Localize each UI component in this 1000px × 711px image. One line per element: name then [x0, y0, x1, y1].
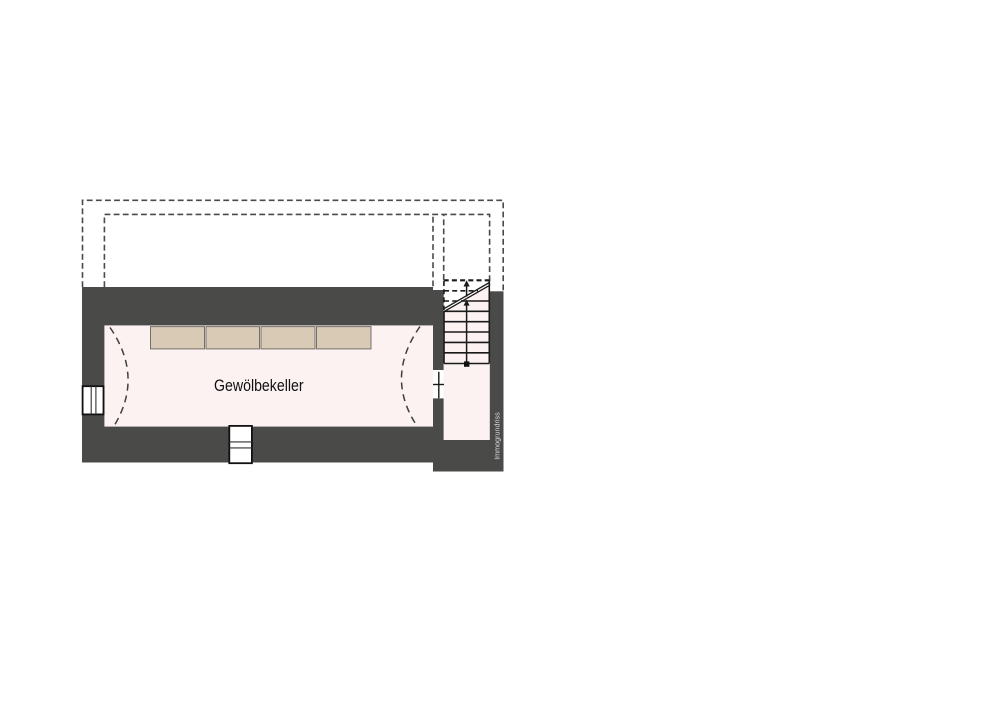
svg-text:Immogrundriss: Immogrundriss	[492, 412, 501, 460]
svg-text:Gewölbekeller: Gewölbekeller	[214, 377, 304, 395]
